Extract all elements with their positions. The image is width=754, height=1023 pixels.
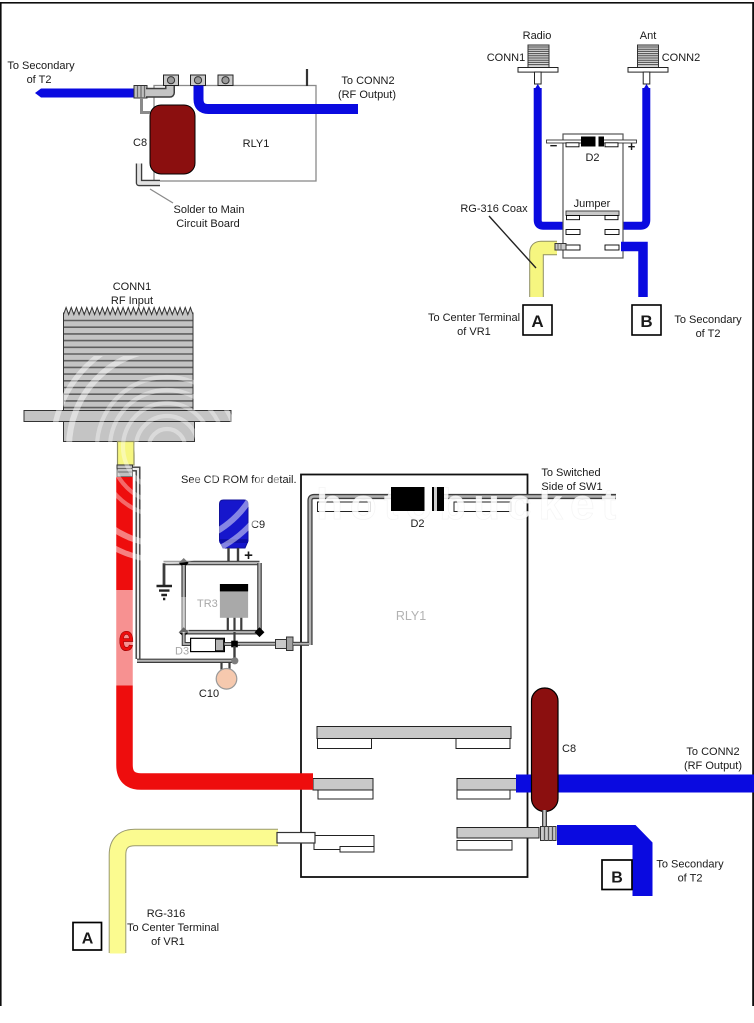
svg-text:To Center Terminal: To Center Terminal [127,922,219,934]
svg-text:C8: C8 [562,743,576,755]
svg-text:e: e [119,618,134,659]
svg-text:A: A [82,931,94,948]
svg-text:To CONN2: To CONN2 [686,746,739,758]
svg-text:RG-316: RG-316 [147,908,186,920]
svg-text:RF Input: RF Input [111,295,153,307]
svg-text:To Switched: To Switched [541,467,600,479]
svg-text:(RF Output): (RF Output) [338,89,396,101]
svg-text:Radio: Radio [523,30,552,42]
svg-text:To Secondary: To Secondary [674,314,742,326]
svg-text:B: B [611,870,623,887]
svg-text:CONN1: CONN1 [113,281,152,293]
svg-text:D2: D2 [585,152,599,164]
svg-text:Jumper: Jumper [574,198,611,210]
svg-text:D2: D2 [410,518,424,530]
svg-text:CONN2: CONN2 [662,52,701,64]
svg-text:−: − [550,138,558,153]
svg-text:RLY1: RLY1 [396,609,426,623]
svg-text:Side of SW1: Side of SW1 [541,481,602,493]
svg-text:CONN1: CONN1 [487,52,526,64]
svg-text:B: B [640,312,652,331]
svg-text:RG-316 Coax: RG-316 Coax [460,203,528,215]
svg-text:A: A [531,312,543,331]
svg-text:Circuit Board: Circuit Board [176,218,240,230]
svg-text:of T2: of T2 [696,328,721,340]
svg-text:TR3: TR3 [197,598,218,610]
svg-text:RLY1: RLY1 [243,138,270,150]
svg-text:of T2: of T2 [27,74,52,86]
svg-text:To CONN2: To CONN2 [341,75,394,87]
svg-text:+: + [628,139,636,154]
svg-text:C8: C8 [133,137,147,149]
svg-text:To Secondary: To Secondary [656,859,724,871]
svg-text:To Center Terminal: To Center Terminal [428,312,520,324]
svg-text:Ant: Ant [640,30,657,42]
svg-text:(RF Output): (RF Output) [684,760,742,772]
svg-text:D3: D3 [175,646,189,658]
svg-text:of VR1: of VR1 [457,326,491,338]
svg-text:C10: C10 [199,688,219,700]
svg-text:of T2: of T2 [678,873,703,885]
svg-text:of VR1: of VR1 [151,936,185,948]
svg-text:To Secondary: To Secondary [7,60,75,72]
svg-text:Solder to Main: Solder to Main [174,204,245,216]
